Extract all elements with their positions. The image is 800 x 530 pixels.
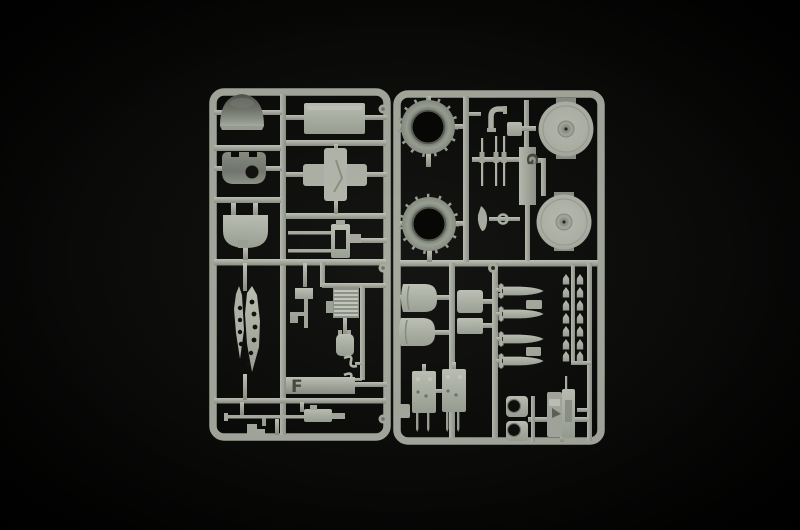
vignette-overlay bbox=[0, 0, 800, 530]
sprue-photo: F bbox=[0, 0, 800, 530]
photo-canvas: F bbox=[0, 0, 800, 530]
